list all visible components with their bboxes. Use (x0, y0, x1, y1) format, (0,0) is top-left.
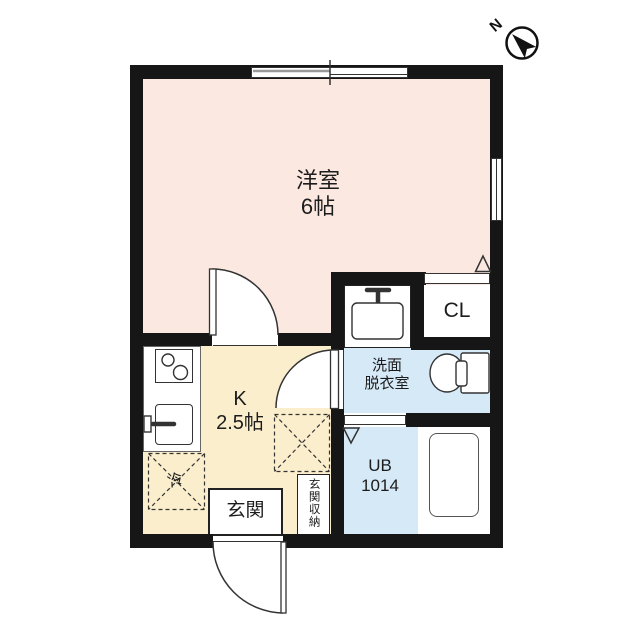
living-door-leaf (210, 269, 217, 335)
unit-bath-size: 1014 (344, 476, 416, 496)
entrance-door-leaf (281, 542, 286, 613)
compass-icon: N (486, 16, 537, 59)
western-room-label: 洋室 6帖 (258, 168, 378, 220)
washroom-name-line2: 脱衣室 (347, 375, 427, 393)
western-room-name: 洋室 (258, 168, 378, 194)
bath-door-triangle (344, 428, 360, 443)
living-door-swing-fill (212, 269, 278, 335)
stove-burner-1 (162, 354, 174, 366)
unit-bath-name: UB (344, 456, 416, 476)
unit-bath-label: UB 1014 (344, 456, 416, 496)
closet-door-triangle (476, 256, 491, 272)
kitchen-size: 2.5帖 (185, 412, 295, 436)
washroom-label: 洗面 脱衣室 (347, 357, 427, 392)
sink-faucet-base (144, 416, 151, 432)
entrance-storage-label: 玄関収納 (306, 478, 320, 528)
north-label: N (486, 16, 505, 36)
plan-linework: N (0, 0, 640, 640)
entrance-door-swing-fill (213, 542, 283, 613)
kitchen-name: K (185, 388, 295, 412)
washroom-name-line1: 洗面 (347, 357, 427, 375)
entrance-label: 玄関 (208, 500, 283, 522)
washbasin-bowl (352, 303, 403, 339)
stove-burner-2 (174, 366, 188, 380)
closet-label: CL (424, 299, 490, 324)
floor-plan: N 洋室 6帖 K 2.5帖 洗面 脱衣室 UB 1014 CL 玄関 玄関収納… (0, 0, 640, 640)
toilet-seat-hinge (456, 361, 467, 386)
kitchen-label: K 2.5帖 (185, 388, 295, 435)
western-room-size: 6帖 (258, 194, 378, 220)
kitchen-door-leaf (331, 350, 339, 409)
